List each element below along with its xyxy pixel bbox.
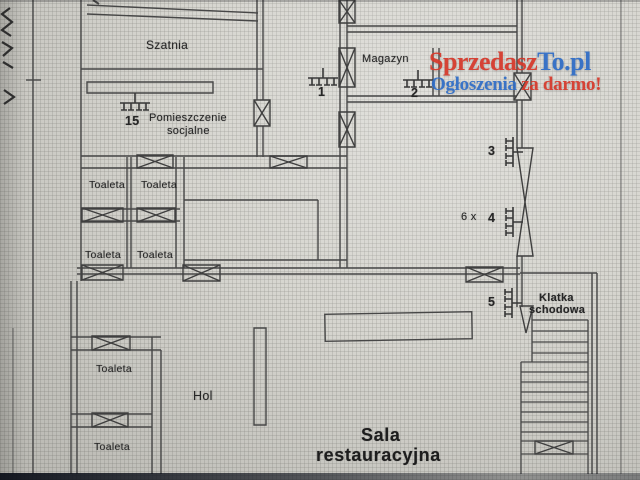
radiator-number-3: 3 xyxy=(488,145,495,158)
radiator-icon-15 xyxy=(120,93,150,110)
room-label-toaleta-6: Toaleta xyxy=(94,442,130,453)
radiator-number-4: 4 xyxy=(488,212,495,225)
room-label-magazyn: Magazyn xyxy=(362,54,409,65)
room-label-toaleta-4: Toaleta xyxy=(137,250,173,261)
radiator-icon-1 xyxy=(308,68,338,85)
door-x-icon xyxy=(82,265,123,280)
staircase-icon xyxy=(521,306,588,474)
room-label-sala-line1: Sala xyxy=(361,426,400,444)
left-edge-marks xyxy=(2,8,14,104)
watermark-tagline-red: za darmo! xyxy=(517,74,602,95)
pillar-outline xyxy=(254,328,266,425)
floor-plan-photo: Szatnia Magazyn Pomieszczenie socjalne 1… xyxy=(0,0,640,480)
radiator-number-1: 1 xyxy=(318,86,325,99)
bench-outline xyxy=(87,82,213,93)
room-label-sala-line2: restauracyjna xyxy=(316,446,441,464)
radiator-quantity-note: 6 x xyxy=(461,212,477,223)
watermark-tagline: Ogłoszenia za darmo! xyxy=(431,74,601,96)
radiator-number-5: 5 xyxy=(488,296,495,309)
radiator-number-2: 2 xyxy=(411,87,418,100)
double-door-bowtie-icon xyxy=(517,148,533,256)
counter-outline xyxy=(325,312,472,342)
watermark-brand: SprzedaszTo.pl xyxy=(429,47,591,77)
door-x-icon xyxy=(92,336,130,350)
door-x-icon xyxy=(535,441,573,454)
watermark-brand-red: Sprzedasz xyxy=(429,47,537,76)
radiator-icon-3 xyxy=(506,137,523,167)
door-x-icon xyxy=(92,413,128,427)
room-label-socjalne-line2: socjalne xyxy=(167,126,210,137)
watermark-tagline-blue: Ogłoszenia xyxy=(431,74,517,95)
room-label-socjalne-line1: Pomieszczenie xyxy=(149,113,227,124)
door-x-icon xyxy=(137,208,175,222)
room-label-hol: Hol xyxy=(193,390,213,403)
room-label-toaleta-5: Toaleta xyxy=(96,364,132,375)
room-label-toaleta-2: Toaleta xyxy=(141,180,177,191)
door-x-icon xyxy=(137,155,173,168)
room-label-toaleta-3: Toaleta xyxy=(85,250,121,261)
door-x-icon xyxy=(270,156,307,168)
room-label-klatka-line2: schodowa xyxy=(529,305,585,316)
radiator-icons xyxy=(120,68,523,318)
door-x-icon xyxy=(254,100,270,126)
radiator-number-15: 15 xyxy=(125,115,140,128)
room-label-szatnia: Szatnia xyxy=(146,39,188,51)
room-label-toaleta-1: Toaleta xyxy=(89,180,125,191)
room-label-klatka-line1: Klatka xyxy=(539,293,574,304)
door-x-icon xyxy=(82,208,123,222)
radiator-icon-5 xyxy=(505,288,522,318)
watermark-brand-blue: To.pl xyxy=(537,47,591,76)
